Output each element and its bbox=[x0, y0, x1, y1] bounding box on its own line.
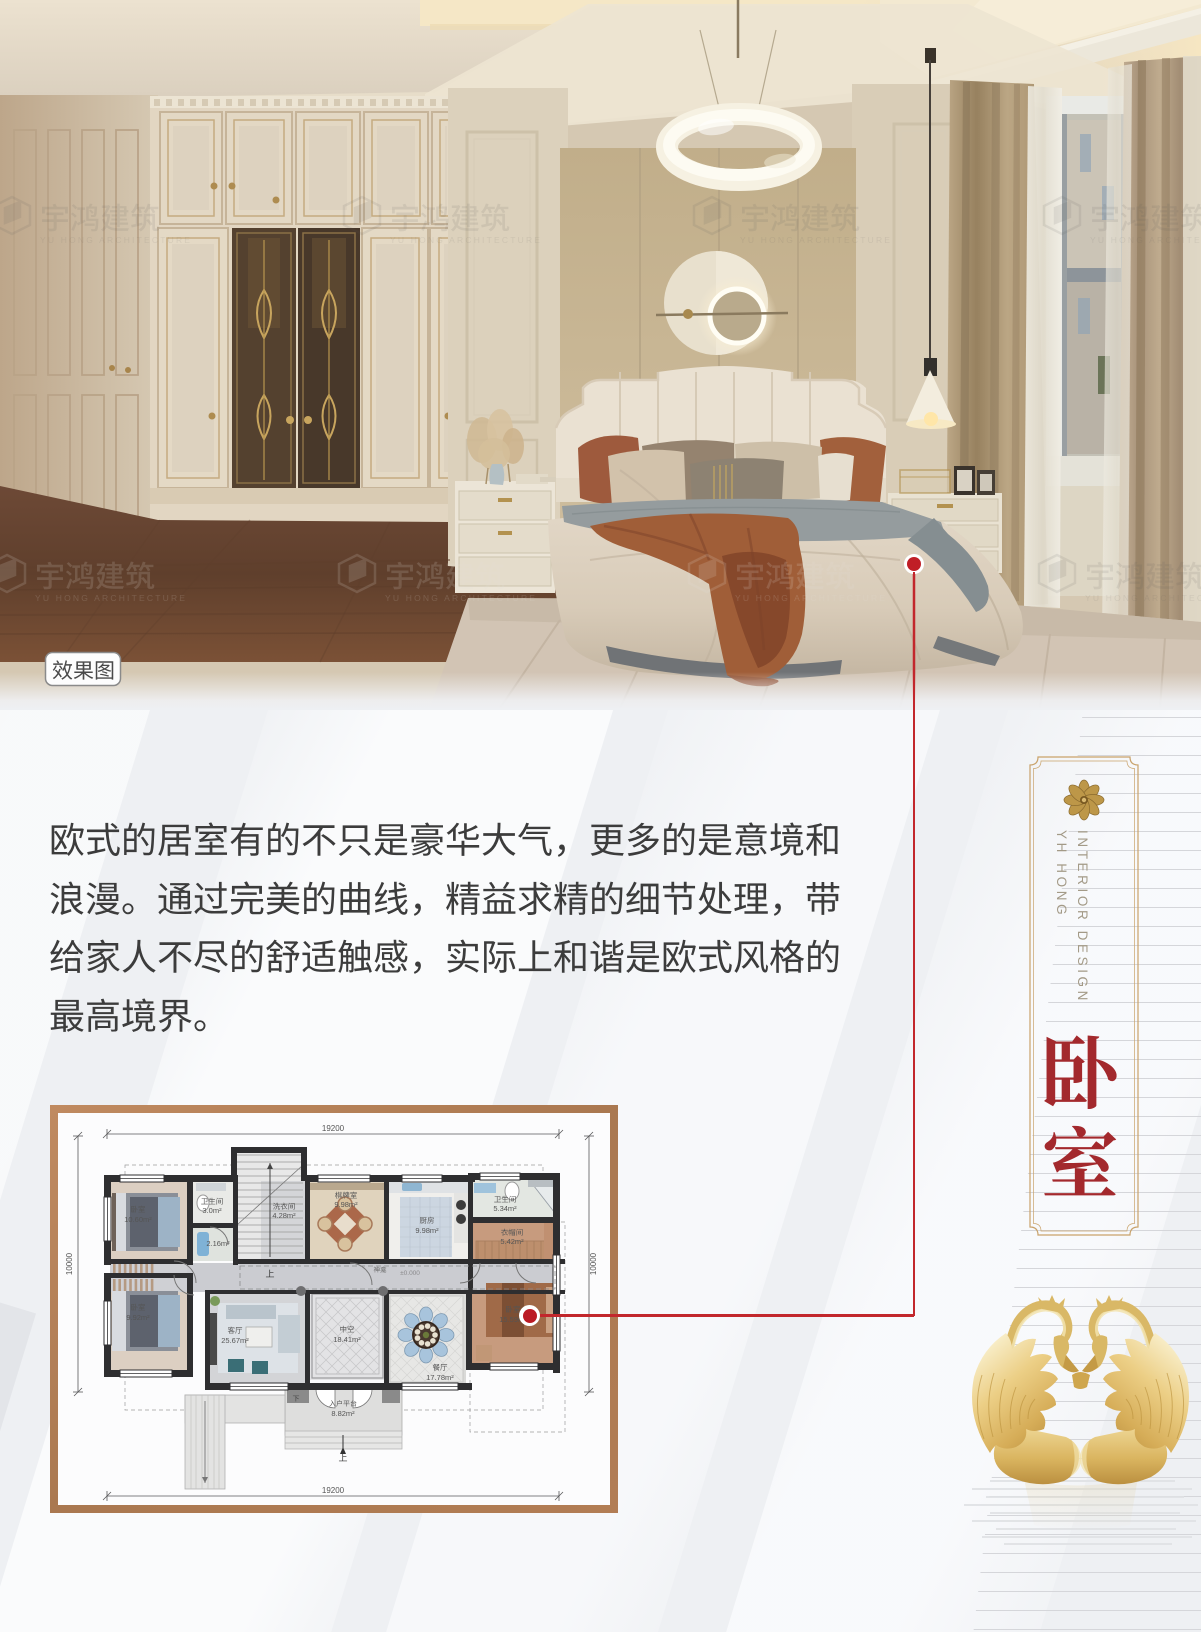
svg-text:YU HONG ARCHITECTURE: YU HONG ARCHITECTURE bbox=[735, 593, 885, 603]
svg-text:YU HONG ARCHITECTURE: YU HONG ARCHITECTURE bbox=[1085, 593, 1201, 603]
svg-text:YU HONG ARCHITECTURE: YU HONG ARCHITECTURE bbox=[35, 593, 185, 603]
svg-text:3.0m²: 3.0m² bbox=[202, 1206, 222, 1215]
svg-text:19200: 19200 bbox=[322, 1486, 345, 1495]
svg-text:17.78m²: 17.78m² bbox=[426, 1373, 454, 1382]
svg-text:YU HONG ARCHITECTURE: YU HONG ARCHITECTURE bbox=[390, 235, 540, 245]
svg-text:10.60m²: 10.60m² bbox=[124, 1215, 152, 1224]
svg-text:9.92m²: 9.92m² bbox=[126, 1313, 150, 1322]
svg-text:4.28m²: 4.28m² bbox=[272, 1211, 296, 1220]
svg-text:2.16m²: 2.16m² bbox=[206, 1239, 230, 1248]
svg-text:25.67m²: 25.67m² bbox=[221, 1336, 249, 1345]
svg-text:5.34m²: 5.34m² bbox=[493, 1204, 517, 1213]
svg-text:10000: 10000 bbox=[65, 1252, 74, 1275]
svg-text:YU HONG ARCHITECTURE: YU HONG ARCHITECTURE bbox=[740, 235, 890, 245]
svg-text:YU HONG ARCHITECTURE: YU HONG ARCHITECTURE bbox=[1090, 235, 1201, 245]
svg-text:9.98m²: 9.98m² bbox=[334, 1200, 358, 1209]
svg-text:8.82m²: 8.82m² bbox=[331, 1409, 355, 1418]
svg-text:19200: 19200 bbox=[322, 1124, 345, 1133]
svg-text:±0.000: ±0.000 bbox=[400, 1270, 420, 1277]
svg-text:YU HONG ARCHITECTURE: YU HONG ARCHITECTURE bbox=[385, 593, 535, 603]
svg-text:YU HONG ARCHITECTURE: YU HONG ARCHITECTURE bbox=[40, 235, 190, 245]
svg-text:9.98m²: 9.98m² bbox=[415, 1226, 439, 1235]
svg-text:10000: 10000 bbox=[589, 1252, 598, 1275]
svg-text:5.42m²: 5.42m² bbox=[500, 1237, 524, 1246]
svg-text:18.41m²: 18.41m² bbox=[333, 1335, 361, 1344]
